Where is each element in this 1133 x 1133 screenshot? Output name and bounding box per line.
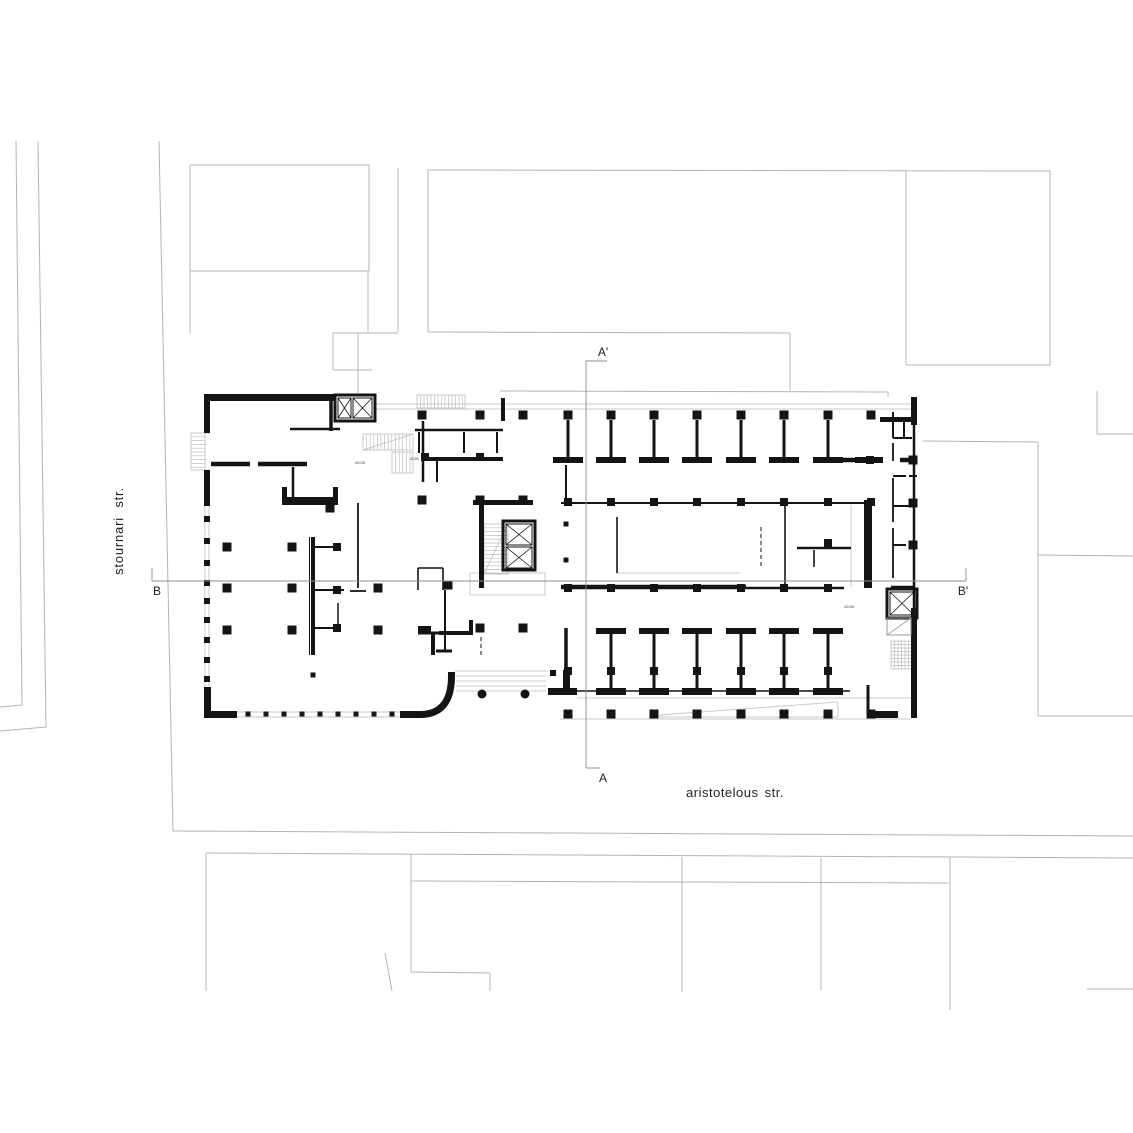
stair-hatch	[191, 433, 205, 470]
wall-thick	[769, 628, 799, 634]
column	[693, 498, 701, 506]
column	[866, 456, 874, 464]
column	[909, 499, 918, 508]
column	[564, 498, 572, 506]
wall-thick	[813, 688, 843, 695]
wall-thick	[548, 688, 577, 695]
wall-thick	[431, 632, 435, 655]
column	[564, 667, 572, 675]
street-label-stournari: stournari str.	[111, 487, 126, 575]
column	[780, 710, 789, 719]
stairs	[191, 395, 913, 669]
wall-thick	[333, 487, 338, 497]
column	[824, 498, 832, 506]
column	[288, 584, 297, 593]
column	[204, 617, 210, 623]
column	[737, 498, 745, 506]
section-marker-b: B	[153, 584, 161, 598]
column	[333, 586, 341, 594]
wall-thick	[204, 394, 210, 433]
wall-thick	[813, 628, 843, 634]
column	[246, 712, 251, 717]
wall-thick	[880, 417, 911, 422]
street-label-aristotelous: aristotelous str.	[686, 785, 784, 800]
wall-thick	[864, 500, 872, 588]
column	[564, 710, 573, 719]
column	[737, 710, 746, 719]
column	[204, 676, 210, 682]
wall-thick	[639, 628, 669, 634]
column	[607, 667, 615, 675]
column	[476, 411, 485, 420]
column	[418, 496, 427, 505]
wall-thick	[479, 503, 484, 588]
elevator	[335, 395, 375, 421]
column	[867, 411, 876, 420]
wall-thick	[204, 711, 237, 718]
section-marker-a: A	[599, 771, 607, 785]
section-marker-b-prime: B'	[958, 584, 968, 598]
wall-thick	[418, 626, 431, 632]
wall-thick	[769, 688, 799, 695]
column	[650, 667, 658, 675]
shaft-void	[887, 618, 911, 635]
wall-thick	[501, 398, 505, 421]
column	[909, 456, 918, 465]
context-outline	[0, 141, 46, 731]
entrance-round-column	[521, 690, 530, 699]
context-outline	[427, 170, 1050, 171]
column	[824, 584, 832, 592]
elevator-shaft	[335, 395, 375, 421]
column	[264, 712, 269, 717]
wall-thick	[204, 470, 210, 506]
column	[564, 558, 569, 563]
context-outline	[159, 141, 173, 831]
column	[223, 543, 232, 552]
context-outline	[428, 332, 790, 333]
wall-thick	[726, 688, 756, 695]
entrance-round-column	[478, 690, 487, 699]
wall-thick	[682, 688, 712, 695]
wall-thick	[204, 394, 335, 401]
column	[336, 712, 341, 717]
curved-wall	[404, 672, 452, 715]
column	[737, 667, 745, 675]
column	[693, 584, 701, 592]
context-outline	[411, 972, 490, 973]
column	[693, 411, 702, 420]
column	[476, 496, 485, 505]
column	[204, 538, 210, 544]
column	[444, 581, 453, 590]
wall-thick	[682, 457, 712, 463]
column	[780, 498, 788, 506]
context-outline	[385, 953, 392, 991]
column	[824, 710, 833, 719]
wall-thick	[469, 620, 473, 632]
column	[824, 539, 832, 547]
column	[780, 411, 789, 420]
column	[372, 712, 377, 717]
light-line	[659, 702, 838, 715]
shaft-diagonal	[887, 618, 911, 635]
context-outline	[500, 391, 888, 392]
column	[564, 411, 573, 420]
context-outline	[1038, 555, 1133, 556]
column	[519, 411, 528, 420]
column	[693, 710, 702, 719]
column	[204, 560, 210, 566]
column	[564, 584, 572, 592]
column	[867, 710, 876, 719]
column	[282, 712, 287, 717]
wall-thick	[726, 628, 756, 634]
column	[564, 522, 569, 527]
context-outline	[0, 141, 22, 707]
stair-hatch	[417, 395, 465, 408]
column	[780, 584, 788, 592]
column	[204, 516, 210, 522]
stair-outline	[191, 433, 205, 470]
column	[476, 453, 484, 461]
column	[354, 712, 359, 717]
wall-thick	[911, 608, 917, 718]
context-outline	[173, 831, 1133, 836]
level-annotation: ±0.00	[844, 604, 855, 609]
column	[390, 712, 395, 717]
column	[204, 657, 210, 663]
section-lines	[152, 361, 966, 768]
level-annotation: -0.05	[409, 456, 419, 461]
wall-thick	[769, 457, 799, 463]
context-outline	[411, 881, 948, 883]
interior-walls	[211, 397, 917, 712]
column	[326, 504, 335, 513]
wall-thick	[639, 688, 669, 695]
wall-thick	[596, 628, 626, 634]
column	[824, 411, 833, 420]
light-lines	[204, 404, 911, 719]
wall-thick	[553, 457, 583, 463]
column	[418, 411, 427, 420]
column	[607, 710, 616, 719]
column	[650, 498, 658, 506]
level-annotation: ±0.00	[355, 460, 366, 465]
context-outline	[923, 441, 1038, 442]
column	[519, 624, 528, 633]
column	[693, 667, 701, 675]
wall-thick	[282, 487, 287, 497]
column	[550, 670, 556, 676]
wall-thick	[596, 688, 626, 695]
floor-plan-svg: stournari str.aristotelous str.A'ABB'±0.…	[0, 0, 1133, 1133]
wall-thick	[439, 631, 473, 635]
wall-thick	[726, 457, 756, 463]
column	[737, 584, 745, 592]
column	[204, 598, 210, 604]
column	[300, 712, 305, 717]
column	[607, 411, 616, 420]
column	[650, 710, 659, 719]
column	[288, 543, 297, 552]
column	[374, 626, 383, 635]
stair-hatch	[891, 641, 913, 669]
column	[421, 453, 429, 461]
column	[476, 624, 485, 633]
wall-thick	[813, 457, 843, 463]
bearing-walls	[204, 394, 917, 718]
column	[737, 411, 746, 420]
column	[780, 667, 788, 675]
stair-hatch	[363, 434, 413, 450]
column	[867, 498, 875, 506]
column	[650, 584, 658, 592]
wall-thick	[639, 457, 669, 463]
drawing-canvas: stournari str.aristotelous str.A'ABB'±0.…	[0, 0, 1133, 1133]
column	[650, 411, 659, 420]
context-outline	[206, 853, 1133, 858]
column	[519, 496, 528, 505]
column	[223, 584, 232, 593]
column	[333, 543, 341, 551]
column	[607, 584, 615, 592]
column	[318, 712, 323, 717]
wall-thick	[682, 628, 712, 634]
column	[824, 667, 832, 675]
column	[288, 626, 297, 635]
elevator	[887, 589, 917, 618]
wall-thick	[911, 397, 917, 425]
column	[223, 626, 232, 635]
column	[311, 673, 316, 678]
context-buildings	[0, 141, 1133, 1010]
column	[333, 624, 341, 632]
column	[607, 498, 615, 506]
column	[909, 541, 918, 550]
wall-thick	[596, 457, 626, 463]
section-marker-a-prime: A'	[598, 345, 608, 359]
column	[374, 584, 383, 593]
column	[204, 637, 210, 643]
